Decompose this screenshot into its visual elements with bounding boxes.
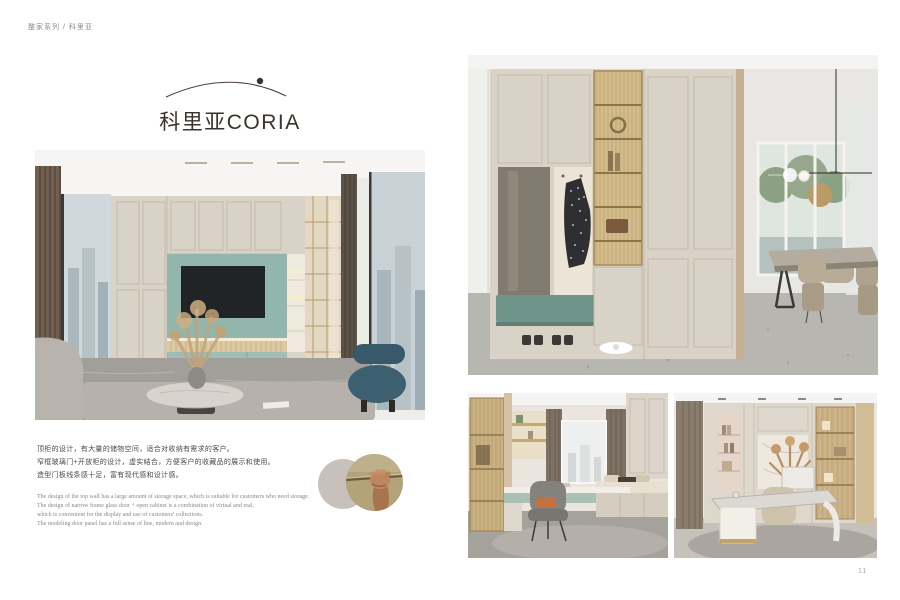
- description-en-line: The design of the top wall has a large a…: [37, 493, 317, 502]
- description-cn-line: 窄框玻璃门+开放柜的设计，虚实结合，方便客户的收藏品的展示和使用。: [37, 456, 317, 469]
- entry-cabinet: [490, 69, 744, 359]
- series-title: 科里亚CORIA: [130, 106, 330, 136]
- robot-vacuum: [599, 342, 633, 359]
- hero-image-entryway: [468, 55, 878, 375]
- detail-circles: [318, 454, 408, 514]
- mirror: [498, 167, 550, 295]
- detail-circle-hand-photo: [346, 454, 403, 511]
- bench: [496, 295, 600, 322]
- logo-arc-icon: [130, 66, 330, 106]
- window: [562, 421, 606, 483]
- description-en-line: The design of narrow frame glass door + …: [37, 502, 317, 511]
- sofa: [35, 338, 83, 420]
- catalog-spread: 整家系列 / 科里亚 科里亚CORIA: [0, 0, 900, 600]
- page-number: 11: [858, 568, 867, 575]
- description-cn-line: 造型门板线条感十足，富有现代感和设计感。: [37, 469, 317, 482]
- description-cn-line: 顶柜的设计，有大量的储物空间，适合对收纳有需求的客户。: [37, 443, 317, 456]
- breadcrumb: 整家系列 / 科里亚: [28, 22, 93, 32]
- coria-tv-wall-cabinet: [111, 196, 341, 378]
- wood-slat-wall: [35, 166, 61, 358]
- curtain: [676, 401, 703, 529]
- description-en-line: which is convenient for the display and …: [37, 511, 317, 520]
- wardrobe: [626, 393, 668, 479]
- thumb-image-home-office: [674, 393, 877, 558]
- glass-cabinet: [470, 398, 504, 531]
- hero-image-living-room: [35, 150, 425, 420]
- tatami-platform: [596, 475, 668, 517]
- display-cabinet-glass: [305, 196, 341, 378]
- description-block: 顶柜的设计，有大量的储物空间，适合对收纳有需求的客户。 窄框玻璃门+开放柜的设计…: [37, 443, 317, 529]
- lit-niche: [718, 415, 740, 491]
- fluted-glass-column: [594, 71, 642, 345]
- open-shelves: [512, 411, 548, 459]
- series-logo: 科里亚CORIA: [130, 66, 330, 138]
- thumb-image-study-window: [468, 393, 668, 558]
- description-en-line: The modeling door panel has a full sense…: [37, 520, 317, 529]
